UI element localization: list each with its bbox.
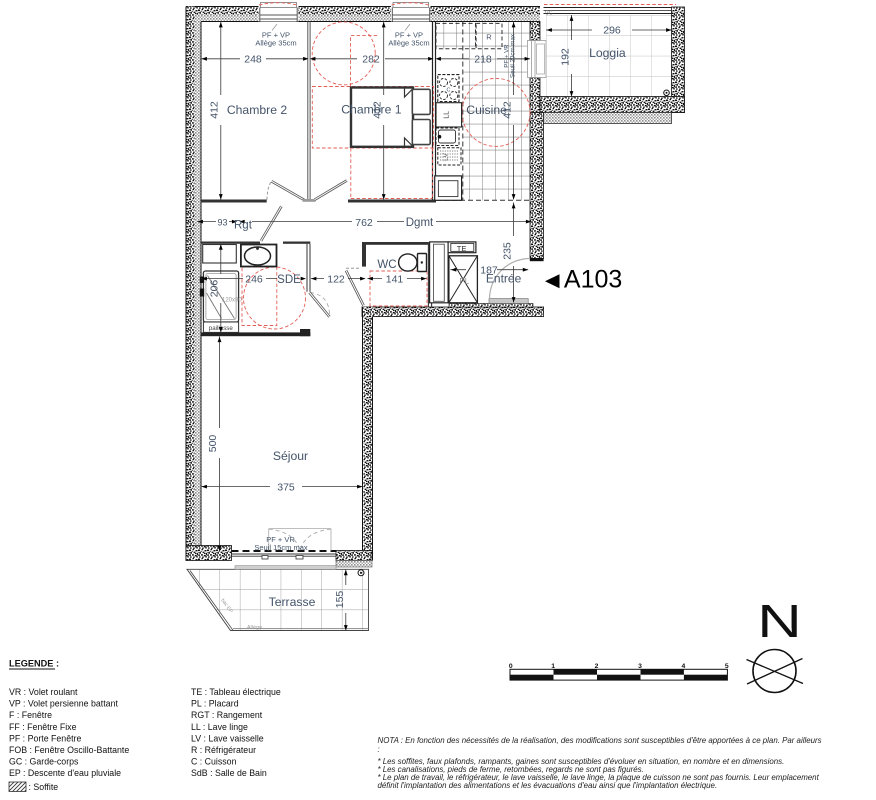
svg-text:Cuisine: Cuisine bbox=[466, 103, 507, 117]
svg-text:LL : Lave linge: LL : Lave linge bbox=[191, 722, 248, 732]
svg-text:Entrée: Entrée bbox=[486, 272, 522, 286]
svg-text:Seuil 20cm max: Seuil 20cm max bbox=[510, 33, 517, 78]
svg-text:SdB : Salle de Bain: SdB : Salle de Bain bbox=[191, 768, 267, 778]
svg-text:412: 412 bbox=[209, 101, 221, 119]
svg-text:Allège 35cm: Allège 35cm bbox=[255, 39, 296, 48]
svg-text:5: 5 bbox=[725, 663, 729, 670]
svg-text:218: 218 bbox=[474, 54, 492, 66]
svg-text:VR : Volet roulant: VR : Volet roulant bbox=[9, 687, 78, 697]
svg-text:R: R bbox=[486, 33, 492, 42]
svg-text:LV: LV bbox=[443, 153, 450, 161]
svg-text:1: 1 bbox=[551, 663, 555, 670]
svg-text:Allège: Allège bbox=[247, 625, 262, 631]
svg-text:93: 93 bbox=[217, 218, 227, 228]
svg-text:EP : Descente d'eau pluviale: EP : Descente d'eau pluviale bbox=[9, 768, 121, 778]
svg-text:LEGENDE :: LEGENDE : bbox=[9, 659, 59, 669]
svg-text:120x90: 120x90 bbox=[222, 298, 242, 304]
svg-text:PL: PL bbox=[459, 277, 469, 286]
svg-text:246: 246 bbox=[245, 273, 263, 285]
svg-text:F : Fenêtre: F : Fenêtre bbox=[9, 710, 52, 720]
svg-text:définit l'implantation des ali: définit l'implantation des alimentations… bbox=[378, 781, 718, 790]
svg-text:206: 206 bbox=[209, 280, 221, 298]
svg-text:LL: LL bbox=[444, 111, 451, 119]
svg-text:Rgt: Rgt bbox=[234, 220, 253, 232]
svg-text:248: 248 bbox=[244, 54, 262, 66]
svg-text:A103: A103 bbox=[564, 266, 622, 294]
svg-text:LV : Lave vaisselle: LV : Lave vaisselle bbox=[191, 733, 264, 743]
svg-text:4: 4 bbox=[682, 663, 686, 670]
svg-text:R : Réfrigérateur: R : Réfrigérateur bbox=[191, 745, 256, 755]
svg-text:Allège 35cm: Allège 35cm bbox=[388, 39, 429, 48]
svg-text:PL : Placard: PL : Placard bbox=[191, 699, 239, 709]
svg-text:C: C bbox=[447, 88, 451, 94]
svg-text:FF : Fenêtre Fixe: FF : Fenêtre Fixe bbox=[9, 722, 77, 732]
svg-text:Terrasse: Terrasse bbox=[269, 595, 316, 609]
svg-text:155: 155 bbox=[334, 591, 346, 609]
svg-text:296: 296 bbox=[603, 25, 621, 37]
svg-text:NOTA : En fonction des nécessi: NOTA : En fonction des nécessités de la … bbox=[378, 736, 822, 745]
svg-text:SDE: SDE bbox=[277, 274, 301, 286]
svg-text:GC : Garde-corps: GC : Garde-corps bbox=[9, 757, 79, 767]
svg-text::: : bbox=[378, 745, 380, 754]
svg-text:3: 3 bbox=[638, 663, 642, 670]
svg-text:RGT : Rangement: RGT : Rangement bbox=[191, 710, 263, 720]
svg-text:Seuil 15cm max: Seuil 15cm max bbox=[254, 543, 308, 552]
svg-text:C : Cuisson: C : Cuisson bbox=[191, 757, 237, 767]
svg-text:0: 0 bbox=[509, 663, 513, 670]
svg-text:Dgmt: Dgmt bbox=[406, 217, 434, 229]
svg-text:Chambre 2: Chambre 2 bbox=[227, 103, 288, 117]
svg-text:GC: GC bbox=[545, 11, 553, 17]
svg-text:192: 192 bbox=[560, 48, 572, 66]
svg-text:141: 141 bbox=[386, 273, 404, 285]
svg-text:500: 500 bbox=[207, 435, 219, 453]
svg-text:235: 235 bbox=[501, 242, 513, 260]
svg-text:Séjour: Séjour bbox=[273, 449, 308, 463]
svg-text:FOB : Fenêtre Oscillo-Battante: FOB : Fenêtre Oscillo-Battante bbox=[9, 745, 129, 755]
svg-text:WC: WC bbox=[377, 259, 396, 271]
svg-text:762: 762 bbox=[355, 217, 373, 229]
svg-text:TE : Tableau électrique: TE : Tableau électrique bbox=[191, 687, 281, 697]
svg-text:Loggia: Loggia bbox=[589, 46, 626, 60]
svg-text:2: 2 bbox=[595, 663, 599, 670]
svg-text:282: 282 bbox=[362, 54, 380, 66]
svg-text:PF : Porte Fenêtre: PF : Porte Fenêtre bbox=[9, 733, 81, 743]
svg-text:375: 375 bbox=[277, 481, 295, 493]
svg-text:N: N bbox=[757, 596, 802, 648]
svg-text:122: 122 bbox=[327, 273, 345, 285]
svg-text:Chambre 1: Chambre 1 bbox=[341, 103, 402, 117]
svg-text:VP : Volet persienne battant: VP : Volet persienne battant bbox=[9, 699, 118, 709]
svg-text:: Soffite: : Soffite bbox=[29, 782, 59, 792]
svg-text:TE: TE bbox=[457, 244, 467, 253]
